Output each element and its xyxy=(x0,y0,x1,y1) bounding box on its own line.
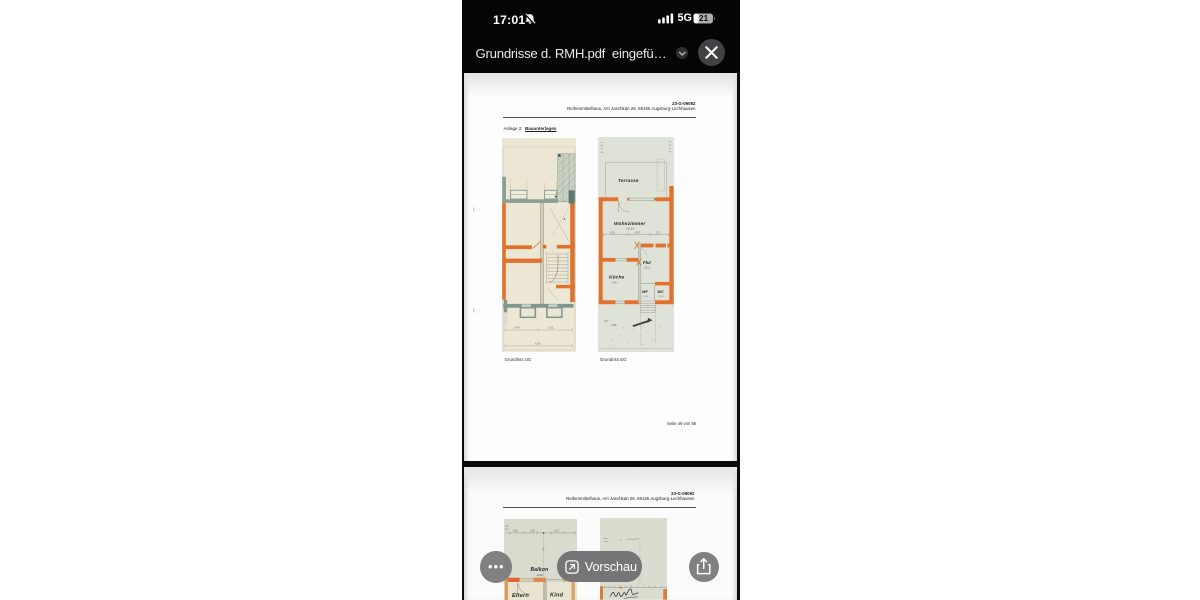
svg-text:Flur: Flur xyxy=(643,260,651,265)
svg-text:3.40: 3.40 xyxy=(514,325,520,329)
svg-text:1,50: 1,50 xyxy=(530,529,535,532)
svg-text:Küche: Küche xyxy=(609,275,625,280)
svg-text:21: 21 xyxy=(699,14,709,23)
svg-text:4,10: 4,10 xyxy=(610,231,615,234)
svg-text:Eltern: Eltern xyxy=(512,593,529,599)
svg-text:WF: WF xyxy=(642,290,648,294)
svg-text:Wohnzimmer: Wohnzimmer xyxy=(614,221,646,226)
svg-text:4,07: 4,07 xyxy=(554,529,559,532)
svg-text:2,20: 2,20 xyxy=(537,573,543,577)
svg-text:4 6: 4 6 xyxy=(604,320,608,323)
svg-text:4,60: 4,60 xyxy=(513,529,518,532)
svg-text:Terrasse: Terrasse xyxy=(618,178,639,183)
svg-text:3,40: 3,40 xyxy=(612,324,617,327)
svg-text:( 21,5 ): ( 21,5 ) xyxy=(626,228,634,231)
svg-text:( 1,3 ): ( 1,3 ) xyxy=(658,296,664,298)
svg-text:Kind: Kind xyxy=(550,592,564,598)
svg-text:( 1,6 ): ( 1,6 ) xyxy=(643,296,649,298)
svg-text:2.61: 2.61 xyxy=(548,325,554,329)
svg-text:4,07: 4,07 xyxy=(635,231,640,234)
svg-text:( 9,4 ): ( 9,4 ) xyxy=(612,283,618,285)
svg-text:WC: WC xyxy=(658,290,664,294)
svg-text:( 5,2 ): ( 5,2 ) xyxy=(644,267,650,269)
svg-text:6.08: 6.08 xyxy=(535,341,541,345)
